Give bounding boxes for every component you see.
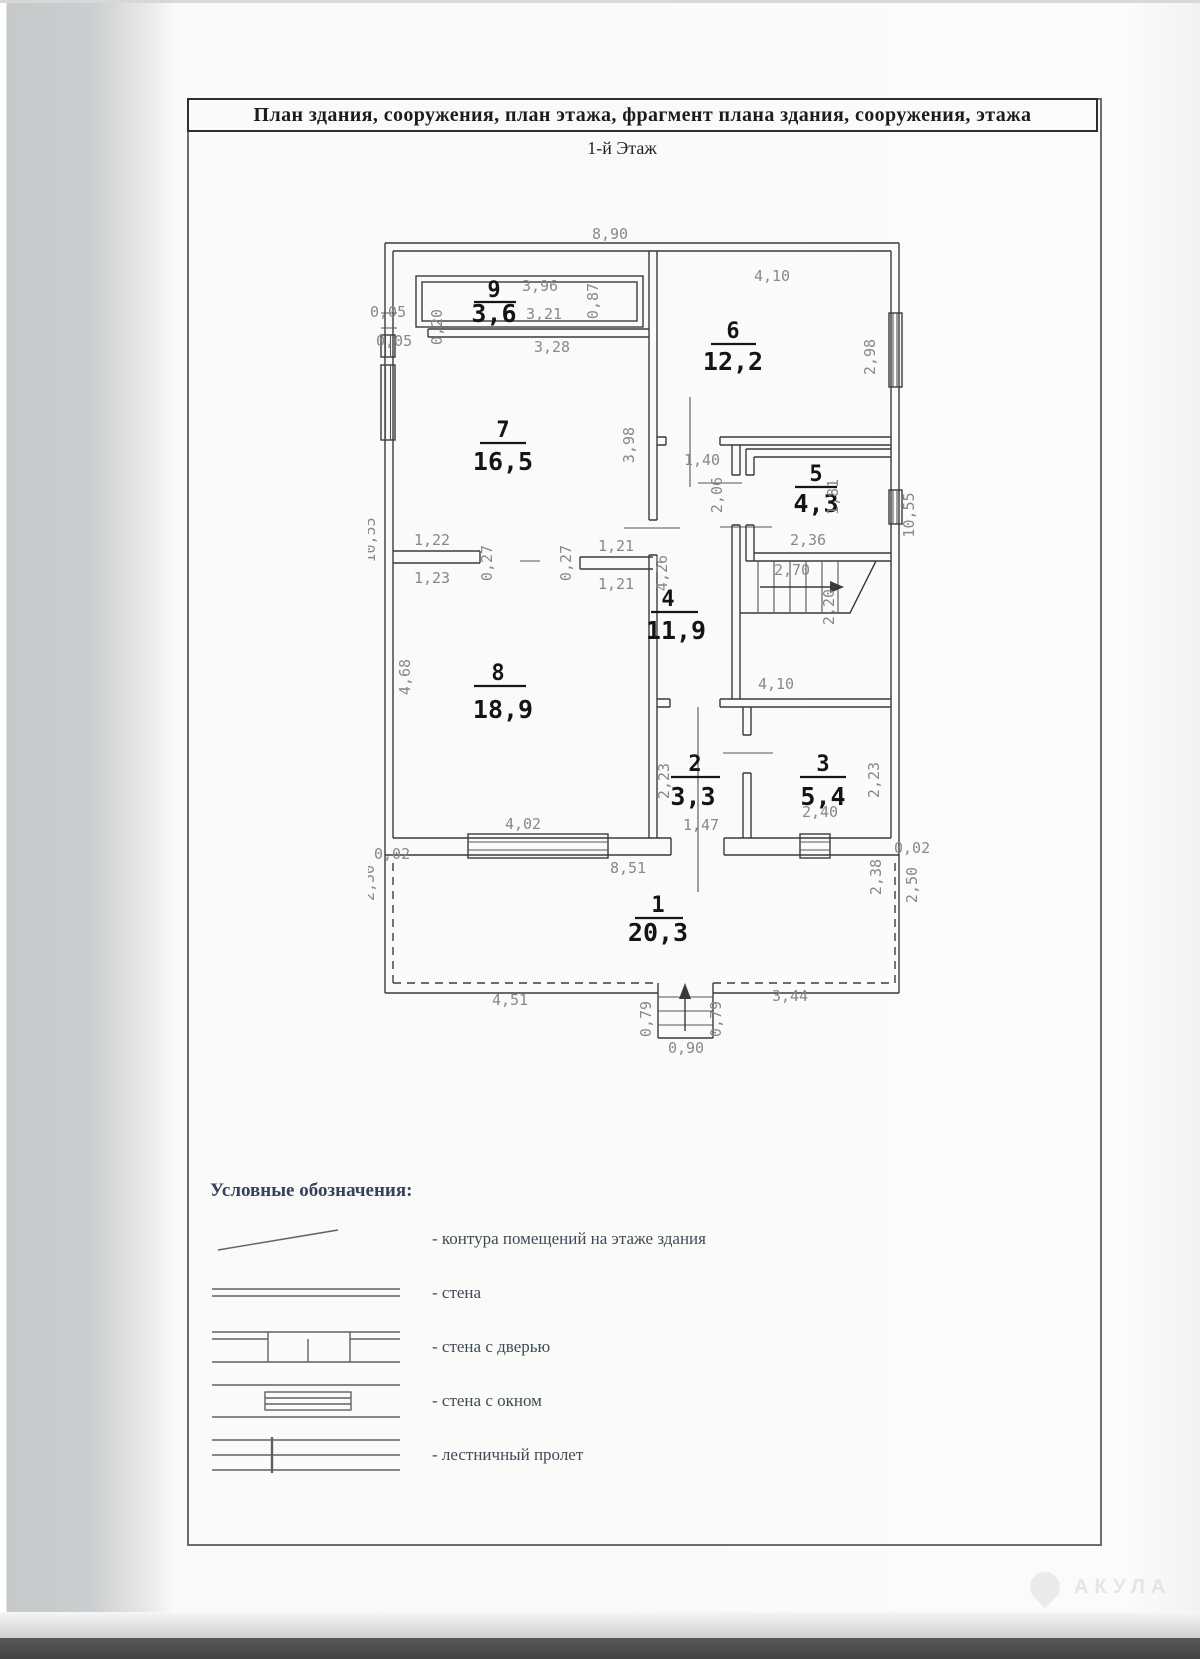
- dim-label: 0,27: [557, 545, 575, 581]
- room-2-label: 2 3,3: [670, 752, 720, 811]
- svg-text:2: 2: [688, 752, 701, 777]
- stairwell-symbol-icon: [210, 1434, 406, 1475]
- dim-label: 8,51: [610, 859, 646, 877]
- watermark-text: АКУЛА: [1074, 1576, 1171, 1599]
- dim-label: 1,81: [824, 479, 842, 515]
- dim-label: 3,44: [772, 987, 808, 1005]
- room-7-label: 7 16,5: [473, 418, 533, 476]
- dim-label: 2,70: [774, 561, 810, 579]
- svg-text:3,3: 3,3: [670, 782, 715, 811]
- dim-label: 4,10: [754, 267, 790, 285]
- legend-item-wall: - стена: [210, 1272, 770, 1313]
- room-7-top-wall: [428, 329, 649, 337]
- legend: Условные обозначения: - контура помещени…: [210, 1180, 770, 1488]
- dim-label: 0,87: [584, 283, 602, 319]
- legend-item-label: - лестничный пролет: [406, 1445, 583, 1465]
- wall-with-door-symbol-icon: [210, 1326, 406, 1367]
- dim-label: 10,55: [900, 492, 918, 537]
- dim-label: 8,90: [592, 225, 628, 243]
- dim-label: 2,20: [820, 589, 838, 625]
- dim-label: 0,02: [894, 839, 930, 857]
- dim-label: 4,02: [505, 815, 541, 833]
- dim-label: 0,79: [707, 1001, 725, 1037]
- legend-item-stairwell: - лестничный пролет: [210, 1434, 770, 1475]
- contour-symbol-icon: [210, 1218, 406, 1259]
- legend-item-wall-with-window: - стена с окном: [210, 1380, 770, 1421]
- dim-label: 2,98: [861, 339, 879, 375]
- dim-label: 0,05: [370, 303, 406, 321]
- svg-text:20,3: 20,3: [628, 918, 688, 947]
- floor-subtitle: 1-й Этаж: [187, 138, 1057, 159]
- dim-label: 0,90: [668, 1039, 704, 1055]
- dim-label: 3,96: [522, 277, 558, 295]
- watermark: АКУЛА: [1030, 1572, 1171, 1602]
- dim-label: 2,50: [903, 867, 921, 903]
- legend-item-wall-with-door: - стена с дверью: [210, 1326, 770, 1367]
- dim-label: 0,05: [376, 332, 412, 350]
- watermark-logo-icon: [1024, 1566, 1066, 1608]
- dim-label: 1,22: [414, 531, 450, 549]
- room-4-bottom-wall: [657, 699, 891, 707]
- legend-item-label: - стена с окном: [406, 1391, 542, 1411]
- scan-edge: [0, 1612, 1200, 1638]
- svg-text:12,2: 12,2: [703, 347, 763, 376]
- dim-label: 3,21: [526, 305, 562, 323]
- dim-label: 1,40: [684, 451, 720, 469]
- dim-label: 1,23: [414, 569, 450, 587]
- dim-label: 0,79: [637, 1001, 655, 1037]
- dim-label: 3,28: [534, 338, 570, 356]
- entrance-steps: [658, 983, 713, 1038]
- dim-label: 0,02: [374, 845, 410, 863]
- room-6-label: 6 12,2: [703, 319, 763, 376]
- dim-label: 4,68: [396, 659, 414, 695]
- dim-label: 0,20: [428, 309, 446, 345]
- svg-text:11,9: 11,9: [646, 616, 706, 645]
- svg-text:8: 8: [491, 661, 504, 686]
- dim-label: 2,36: [790, 531, 826, 549]
- wall-symbol-icon: [210, 1272, 406, 1313]
- svg-text:7: 7: [496, 418, 509, 443]
- room-9-label: 9 3,6: [471, 278, 516, 328]
- dim-label: 2,50: [368, 865, 378, 901]
- room-8-label: 8 18,9: [473, 661, 533, 724]
- svg-text:3: 3: [816, 752, 829, 777]
- room-1-label: 1 20,3: [628, 893, 688, 947]
- floor-plan-drawing: 9 3,6 6 12,2 7 16,5 5 4,3 4 11,9 8 18,9 …: [368, 225, 936, 1055]
- room-2-3-partition: [743, 707, 751, 838]
- legend-item-label: - стена: [406, 1283, 481, 1303]
- page-title: План здания, сооружения, план этажа, фра…: [187, 98, 1098, 132]
- dim-label: 4,10: [758, 675, 794, 693]
- dim-label: 2,06: [708, 477, 726, 513]
- legend-title: Условные обозначения:: [210, 1180, 770, 1202]
- central-wall: [649, 251, 657, 838]
- room-4-label: 4 11,9: [646, 587, 706, 645]
- dim-label: 2,23: [865, 762, 883, 798]
- legend-item-label: - стена с дверью: [406, 1337, 550, 1357]
- room-6-bottom-wall: [657, 437, 891, 445]
- svg-text:18,9: 18,9: [473, 695, 533, 724]
- wall-with-window-symbol-icon: [210, 1380, 406, 1421]
- entry-direction-arrow: [679, 983, 691, 999]
- svg-text:16,5: 16,5: [473, 447, 533, 476]
- dim-label: 3,98: [620, 427, 638, 463]
- dim-label: 10,55: [368, 517, 379, 562]
- bottom-main-wall: [385, 838, 899, 855]
- svg-text:6: 6: [726, 319, 739, 344]
- dim-label: 4,26: [653, 555, 671, 591]
- svg-text:1: 1: [651, 893, 664, 918]
- svg-text:5: 5: [809, 462, 822, 487]
- dim-label: 2,38: [867, 859, 885, 895]
- scan-dark-band: [0, 1638, 1200, 1659]
- dim-label: 4,51: [492, 991, 528, 1009]
- dim-label: 1,21: [598, 537, 634, 555]
- legend-item-contour: - контура помещений на этаже здания: [210, 1218, 770, 1259]
- dim-label: 1,21: [598, 575, 634, 593]
- dim-label: 2,23: [655, 763, 673, 799]
- legend-item-label: - контура помещений на этаже здания: [406, 1229, 706, 1249]
- dim-label: 2,40: [802, 803, 838, 821]
- dim-label: 0,27: [478, 545, 496, 581]
- scan-edge: [0, 0, 1200, 3]
- dim-label: 1,47: [683, 816, 719, 834]
- svg-text:3,6: 3,6: [471, 299, 516, 328]
